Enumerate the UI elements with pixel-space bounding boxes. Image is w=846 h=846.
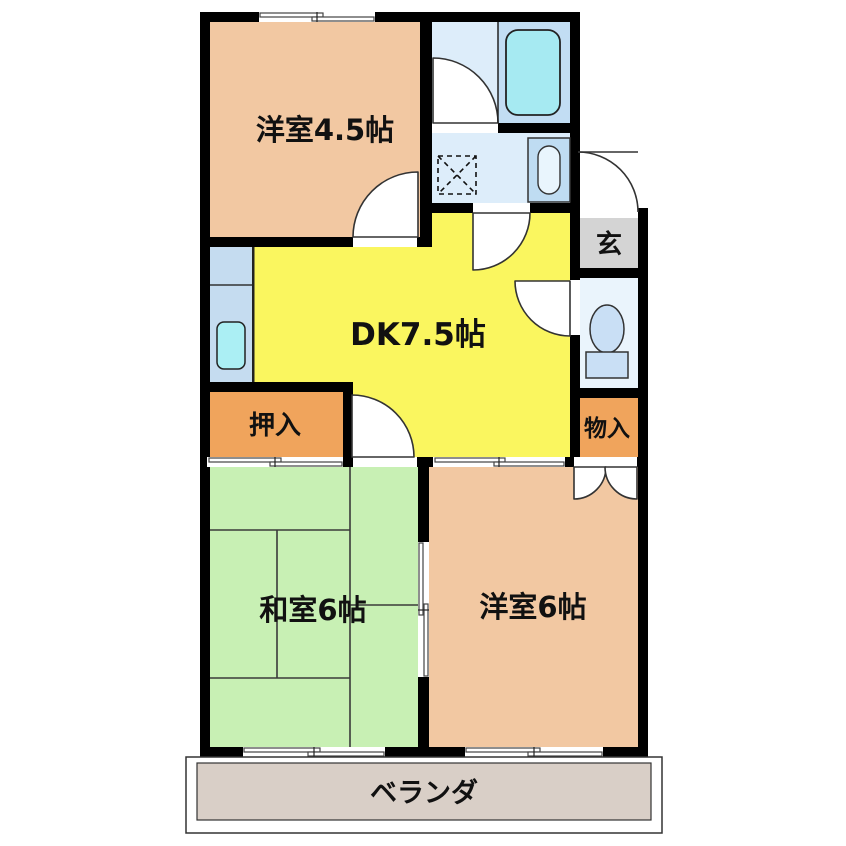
label-monoire: 物入 xyxy=(584,415,630,442)
monoire-door-opening xyxy=(574,457,637,467)
floor-plan-canvas: 洋室4.5帖 DK7.5帖 和室6帖 洋室6帖 押入 物入 玄 ベランダ xyxy=(0,0,846,846)
entrance-door-opening xyxy=(580,208,638,218)
kitchen-sink xyxy=(217,322,245,369)
label-washitsu6: 和室6帖 xyxy=(259,593,366,627)
window-washitsu-bottom xyxy=(243,747,385,757)
toilet xyxy=(586,305,628,378)
label-yoshitsu45: 洋室4.5帖 xyxy=(256,113,394,147)
label-veranda: ベランダ xyxy=(370,777,478,809)
oshiire-sliding-door xyxy=(207,457,343,467)
dk-yoshitsu6-sliding-door xyxy=(433,457,565,467)
bathtub xyxy=(506,30,560,115)
bath-door-opening xyxy=(432,123,498,133)
label-yoshitsu6: 洋室6帖 xyxy=(479,590,586,624)
label-dk: DK7.5帖 xyxy=(350,317,486,353)
washitsu-yoshitsu6-sliding-door xyxy=(418,542,429,677)
floor-plan-page: 洋室4.5帖 DK7.5帖 和室6帖 洋室6帖 押入 物入 玄 ベランダ xyxy=(0,0,846,846)
window-top xyxy=(259,12,375,22)
entrance-door-arc xyxy=(578,152,638,212)
label-genkan: 玄 xyxy=(596,229,622,260)
yoshitsu45-door-opening xyxy=(353,237,417,247)
window-yoshitsu6-bottom xyxy=(465,747,603,757)
washitsu-door-opening xyxy=(353,457,417,467)
toilet-door-opening xyxy=(570,280,580,335)
label-oshiire: 押入 xyxy=(249,411,301,441)
washroom-door-opening xyxy=(473,203,530,213)
washbasin xyxy=(528,138,570,202)
